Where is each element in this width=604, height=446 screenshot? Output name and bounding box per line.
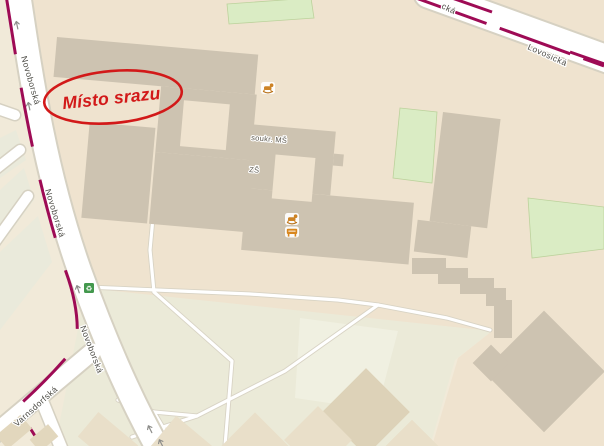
right-building-lower <box>414 220 471 258</box>
school-label: ZŠ <box>249 165 260 175</box>
school-courtyard-1 <box>180 100 230 150</box>
school-bump <box>333 154 344 167</box>
green-area-right <box>528 198 604 258</box>
map-canvas[interactable]: ♻ Novoborská Novoborská Novoborská Varns… <box>0 0 604 446</box>
recycling-icon[interactable]: ♻ <box>83 282 95 294</box>
table-tennis-icon[interactable] <box>285 227 299 238</box>
school-lower-middle-wing <box>149 152 253 232</box>
school-left-wing <box>81 122 155 223</box>
green-area-middle <box>393 108 437 183</box>
playground-icon[interactable] <box>261 82 275 94</box>
svg-text:♻: ♻ <box>86 284 93 293</box>
school-courtyard-2 <box>272 154 316 201</box>
playground-icon[interactable] <box>285 213 299 225</box>
